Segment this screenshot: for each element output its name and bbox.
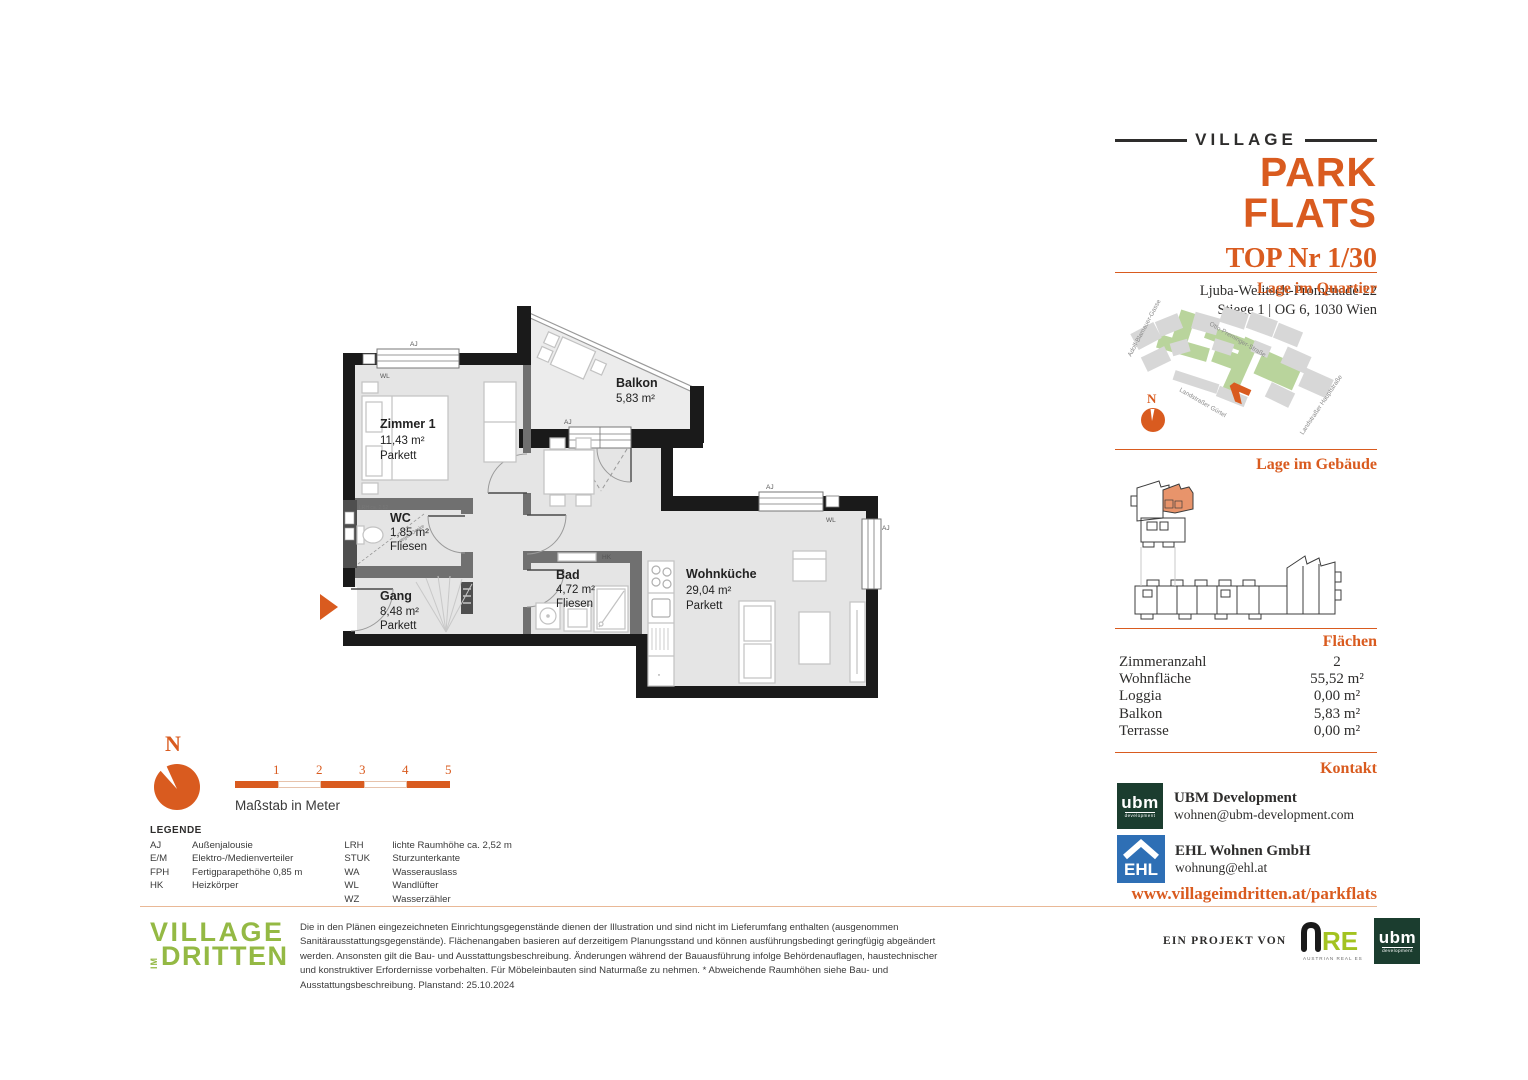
legend-abbr: STUK [344, 852, 392, 865]
website-link[interactable]: www.villageimdritten.at/parkflats [1115, 884, 1377, 904]
scalebar-caption: Maßstab in Meter [235, 798, 340, 813]
room-floor: Parkett [380, 450, 417, 462]
room-area: 11,43 m² [380, 435, 425, 447]
room-name: WC [390, 511, 411, 525]
scalebar-tick: 3 [359, 762, 366, 778]
legend-term: Elektro-/Medienverteiler [192, 852, 293, 865]
tag-aj: AJ [410, 341, 418, 348]
legend-abbr: LRH [344, 839, 392, 852]
section-title-quartier: Lage im Quartier [1115, 280, 1377, 298]
ubm-logo: ubm development [1117, 783, 1163, 829]
zimmer-window [377, 349, 459, 368]
ubm-logo-text: ubm [1121, 794, 1158, 811]
area-value: 55,52 m² [1297, 671, 1377, 688]
room-area: 4,72 m² [556, 584, 595, 596]
room-floor: Fliesen [390, 541, 427, 553]
scalebar-segment [407, 781, 450, 788]
area-row: Terrasse0,00 m² [1115, 723, 1377, 740]
tag-hk: HK [602, 554, 612, 561]
contact-ehl: EHL EHL Wohnen GmbH wohnung@ehl.at [1117, 835, 1311, 883]
tag-wl: WL [826, 517, 836, 524]
wohnkueche-vent [826, 496, 839, 507]
are-arc-icon [1304, 925, 1318, 949]
legend-abbr: E/M [150, 852, 192, 865]
area-label: Wohnfläche [1119, 671, 1191, 688]
scalebar-tick: 4 [402, 762, 409, 778]
shower [594, 586, 628, 632]
area-value: 0,00 m² [1297, 688, 1377, 705]
legend-row: HKHeizkörper [150, 879, 302, 892]
legend-title: LEGENDE [150, 825, 512, 836]
fridge-mark: * [658, 674, 660, 680]
contact-name: UBM Development [1174, 790, 1354, 807]
legend-row: FPHFertigparapethöhe 0,85 m [150, 866, 302, 879]
room-area: 8,48 m² [380, 606, 419, 618]
room-floor: Fliesen [556, 598, 593, 610]
legend-term: lichte Raumhöhe ca. 2,52 m [392, 839, 511, 852]
building-highlight-unit [1163, 484, 1193, 513]
ehl-logo-graphic: EHL [1117, 835, 1165, 883]
section-title-flaechen: Flächen [1115, 633, 1377, 651]
village-im-dritten-logo: VILLAGE IM DRITTEN [150, 920, 289, 969]
area-value: 0,00 m² [1297, 723, 1377, 740]
scalebar-ticks: 1 2 3 4 5 [0, 762, 500, 778]
divider-2 [1115, 449, 1377, 450]
legend-term: Wasserzähler [392, 893, 450, 906]
are-logo: RE AUSTRIAN REAL ESTATE [1298, 919, 1362, 963]
legend-term: Wandlüfter [392, 879, 438, 892]
legend-col1: AJAußenjalousie E/MElektro-/Medienvertei… [150, 839, 302, 906]
zimmer-vent [363, 354, 375, 364]
section-title-gebaeude: Lage im Gebäude [1115, 456, 1377, 474]
tag-lrh: LRH ca. 2,52 [359, 505, 388, 511]
village-logo-line2: DRITTEN [161, 944, 289, 968]
area-row: Wohnfläche55,52 m² [1115, 671, 1377, 688]
ubm-logo-sub: development [1382, 947, 1413, 954]
legend-row: LRHlichte Raumhöhe ca. 2,52 m [344, 839, 511, 852]
nightstand [362, 483, 378, 494]
legend-row: WZWasserzähler [344, 893, 511, 906]
village-logo-im: IM [150, 955, 159, 969]
legend-abbr: HK [150, 879, 192, 892]
footer-divider [140, 906, 1377, 907]
sideboard [850, 602, 865, 682]
scalebar-tick: 5 [445, 762, 452, 778]
scalebar-segment [278, 781, 321, 788]
area-value: 5,83 m² [1297, 706, 1377, 723]
room-name: Wohnküche [686, 567, 757, 581]
wardrobe [484, 382, 516, 462]
legend-abbr: AJ [150, 839, 192, 852]
scalebar-segment [235, 781, 278, 788]
nightstand [362, 382, 378, 393]
legend-col2: LRHlichte Raumhöhe ca. 2,52 m STUKSturzu… [344, 839, 511, 906]
wohnkueche-top-window [759, 492, 823, 511]
legend-row: AJAußenjalousie [150, 839, 302, 852]
legend-abbr: WZ [344, 893, 392, 906]
contact-email[interactable]: wohnung@ehl.at [1175, 860, 1311, 876]
divider-3 [1115, 628, 1377, 629]
sofa [739, 601, 775, 683]
legend-abbr: WA [344, 866, 392, 879]
legend-row: WLWandlüfter [344, 879, 511, 892]
areas-table: Zimmeranzahl2 Wohnfläche55,52 m² Loggia0… [1115, 654, 1377, 740]
area-label: Terrasse [1119, 723, 1169, 740]
street-label: Adolf-Blamauer-Gasse [1127, 299, 1163, 358]
scalebar [235, 781, 450, 788]
quartier-map: Adolf-Blamauer-Gasse Otto-Preminger-Stra… [1117, 299, 1369, 445]
legend-term: Fertigparapethöhe 0,85 m [192, 866, 302, 879]
are-logo-text: RE [1322, 926, 1358, 956]
entrance-arrow [320, 594, 338, 620]
brand-parkflats: PARK FLATS [1115, 152, 1377, 234]
contact-email[interactable]: wohnen@ubm-development.com [1174, 807, 1354, 823]
room-floor: Parkett [380, 620, 417, 632]
room-area: 5,83 m² [616, 393, 655, 405]
room-name: Bad [556, 568, 580, 582]
entrance-gap [341, 587, 357, 631]
divider-4 [1115, 752, 1377, 753]
legend-row: WAWasserauslass [344, 866, 511, 879]
legend-abbr: FPH [150, 866, 192, 879]
legend-abbr: WL [344, 879, 392, 892]
ehl-logo: EHL [1117, 835, 1165, 883]
brand-village-row: VILLAGE [1115, 130, 1377, 150]
tag-aj: AJ [564, 419, 572, 426]
map-compass: N [1141, 391, 1165, 432]
divider-1 [1115, 272, 1377, 273]
area-row: Balkon5,83 m² [1115, 706, 1377, 723]
contact-name: EHL Wohnen GmbH [1175, 843, 1311, 860]
room-name: Balkon [616, 376, 658, 390]
project-credits: EIN PROJEKT VON RE AUSTRIAN REAL ESTATE … [1163, 918, 1420, 964]
radiator [558, 553, 596, 561]
ehl-roof-icon [1125, 843, 1157, 857]
coffee-table [799, 612, 830, 664]
brand-village: VILLAGE [1195, 130, 1297, 150]
legend-term: Außenjalousie [192, 839, 253, 852]
tag-aj: AJ [882, 525, 890, 532]
armchair [793, 551, 826, 581]
scalebar-segment [321, 781, 364, 788]
building-sketch [1117, 474, 1369, 624]
ehl-logo-text: EHL [1124, 860, 1158, 879]
room-area: 29,04 m² [686, 585, 732, 597]
scalebar-tick: 1 [273, 762, 280, 778]
brand-line-left [1115, 139, 1187, 142]
disclaimer-text: Die in den Plänen eingezeichneten Einric… [300, 921, 940, 993]
scalebar-segment [364, 781, 407, 788]
project-prefix: EIN PROJEKT VON [1163, 935, 1286, 947]
area-row: Loggia0,00 m² [1115, 688, 1377, 705]
floorplan-sheet: VILLAGE PARK FLATS TOP Nr 1/30 Ljuba-Wel… [0, 0, 1528, 1080]
room-floor: Parkett [686, 600, 723, 612]
ubm-logo-text: ubm [1379, 929, 1416, 946]
toilet [357, 526, 383, 544]
section-title-kontakt: Kontakt [1115, 760, 1377, 778]
wohnkueche-side-window [862, 519, 881, 589]
room-name: Zimmer 1 [380, 417, 436, 431]
map-compass-n: N [1147, 391, 1157, 406]
are-logo-sub: AUSTRIAN REAL ESTATE [1303, 956, 1362, 961]
compass-n-label: N [165, 731, 181, 757]
legend-row: STUKSturzunterkante [344, 852, 511, 865]
ubm-logo-footer: ubm development [1374, 918, 1420, 964]
unit-title: TOP Nr 1/30 [1115, 245, 1377, 273]
scalebar-tick: 2 [316, 762, 323, 778]
wz-box [461, 582, 473, 614]
legend-term: Heizkörper [192, 879, 238, 892]
legend-row: E/MElektro-/Medienverteiler [150, 852, 302, 865]
legend-term: Wasserauslass [392, 866, 457, 879]
contact-ubm: ubm development UBM Development wohnen@u… [1117, 783, 1354, 829]
kitchen-counter [648, 561, 674, 686]
tag-aj: AJ [766, 484, 774, 491]
floor-plan: Zimmer 1 11,43 m² Parkett Balkon 5,83 m²… [318, 298, 900, 720]
area-label: Zimmeranzahl [1119, 654, 1206, 671]
brand-line-right [1305, 139, 1377, 142]
legend: LEGENDE AJAußenjalousie E/MElektro-/Medi… [150, 825, 512, 906]
legend-term: Sturzunterkante [392, 852, 460, 865]
area-row: Zimmeranzahl2 [1115, 654, 1377, 671]
area-label: Balkon [1119, 706, 1162, 723]
tag-wl: WL [380, 373, 390, 380]
room-name: Gang [380, 589, 412, 603]
area-label: Loggia [1119, 688, 1162, 705]
area-value: 2 [1297, 654, 1377, 671]
ubm-logo-sub: development [1125, 812, 1156, 819]
